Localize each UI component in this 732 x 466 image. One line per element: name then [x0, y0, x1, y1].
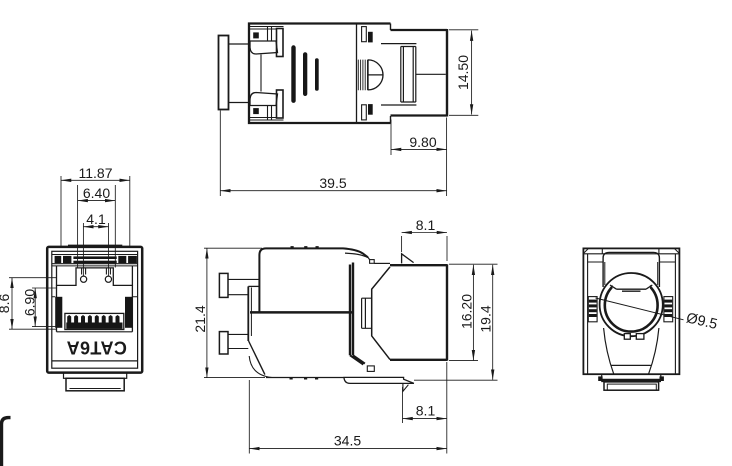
svg-text:CAT6A: CAT6A [66, 338, 127, 358]
svg-text:6.40: 6.40 [83, 185, 110, 201]
svg-text:6.90: 6.90 [21, 289, 37, 316]
svg-text:16.20: 16.20 [459, 294, 475, 329]
svg-text:11.87: 11.87 [79, 165, 113, 181]
svg-text:14.50: 14.50 [455, 55, 471, 90]
svg-text:34.5: 34.5 [334, 433, 361, 449]
svg-text:8.1: 8.1 [416, 403, 436, 419]
svg-text:4.1: 4.1 [86, 211, 106, 227]
svg-text:39.5: 39.5 [319, 175, 346, 191]
svg-text:19.4: 19.4 [478, 305, 494, 332]
svg-text:9.80: 9.80 [409, 134, 436, 150]
svg-text:21.4: 21.4 [192, 305, 208, 332]
svg-text:8.6: 8.6 [0, 294, 12, 314]
svg-text:8.1: 8.1 [416, 217, 436, 233]
